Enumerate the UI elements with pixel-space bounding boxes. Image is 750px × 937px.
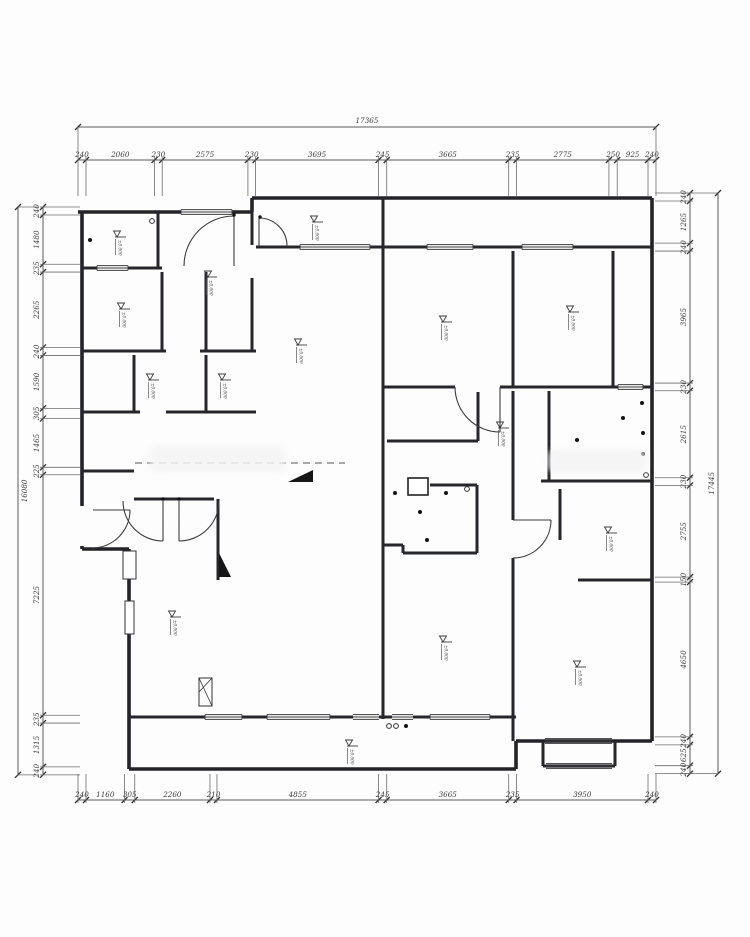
shaft-triangle-symbol	[219, 553, 231, 577]
dimension-label: 240	[679, 190, 688, 205]
dimension-label: 4855	[288, 790, 308, 799]
doors-layer	[92, 213, 551, 558]
elevation-marker-triangle	[169, 611, 176, 617]
dimension-label: 240	[644, 790, 659, 799]
elevation-marker-triangle	[118, 303, 125, 309]
elevation-marker-triangle	[219, 374, 226, 380]
outer-walls-path	[78, 198, 652, 769]
section-wedge-symbol	[288, 470, 313, 482]
light-dot	[621, 416, 625, 420]
elevation-marker-triangle	[574, 661, 581, 667]
dimension-label: 2575	[195, 150, 215, 159]
dimension-label: 240	[679, 762, 688, 777]
elevation-marker: ±0.000	[440, 316, 453, 341]
dimension-label: 240	[32, 204, 41, 219]
dimension-label: 150	[679, 572, 688, 586]
dimension-label: 240	[32, 344, 41, 359]
elevation-marker-triangle	[567, 306, 574, 312]
dimension-label: 230	[244, 150, 259, 159]
dimension-label: 230	[151, 150, 166, 159]
dimension-label: 3695	[308, 150, 327, 159]
light-dot	[425, 538, 429, 542]
dimension-label: 1160	[96, 790, 115, 799]
elevation-marker-triangle	[440, 316, 447, 322]
dimension-label: 245	[375, 790, 390, 799]
elevation-marker-triangle	[147, 374, 154, 380]
column-symbol	[408, 478, 428, 495]
elevation-marker: ±0.000	[114, 231, 127, 256]
elevation-marker-label: ±0.000	[173, 620, 178, 636]
dimension-label: 230	[679, 474, 688, 489]
elevation-marker-label: ±0.000	[578, 670, 583, 686]
elevation-marker: ±0.000	[295, 339, 308, 364]
dimension-label: 305	[32, 406, 41, 420]
elevation-marker: ±0.000	[497, 422, 510, 447]
dimension-label: 925	[626, 150, 640, 159]
elevation-marker: ±0.000	[147, 374, 160, 399]
elevation-marker-triangle	[311, 216, 318, 222]
dimension-label: 1480	[32, 230, 41, 249]
light-dot	[404, 724, 408, 728]
elevation-marker-label: ±0.000	[151, 383, 156, 399]
elevation-marker: ±0.000	[605, 527, 618, 552]
overall-dimension-label: 16080	[20, 479, 29, 502]
dimension-label: 240	[644, 150, 659, 159]
elevation-marker: ±0.000	[440, 636, 453, 661]
elevation-marker-label: ±0.000	[609, 536, 614, 552]
door-hinge-dot	[232, 213, 235, 216]
elevation-marker-triangle	[605, 527, 612, 533]
dimension-label: 2260	[162, 790, 182, 799]
light-dots-layer	[88, 219, 648, 729]
elevation-marker-label: ±0.000	[209, 280, 214, 296]
light-dot	[575, 438, 579, 442]
dimension-label: 235	[505, 150, 520, 159]
dimension-label: 1465	[32, 433, 41, 452]
dimension-label: 240	[74, 150, 89, 159]
dimension-label: 240	[679, 240, 688, 255]
overall-dimension-label: 17445	[707, 471, 716, 494]
elevation-marker: ±0.000	[574, 661, 587, 686]
dimension-label: 3665	[439, 150, 458, 159]
dimension-label: 2060	[110, 150, 130, 159]
door-hinge-dot	[258, 215, 261, 218]
dimension-label: 225	[32, 464, 41, 479]
floor-plan-svg: 2402060230257523036952453665235277525092…	[0, 0, 750, 937]
dimension-label: 625	[679, 748, 688, 762]
dimension-label: 2755	[679, 522, 688, 542]
elevation-marker-triangle	[440, 636, 447, 642]
elevation-marker: ±0.000	[346, 740, 359, 765]
light-dot	[393, 491, 397, 495]
elevation-marker-label: ±0.000	[444, 645, 449, 661]
dimension-label: 240	[74, 790, 89, 799]
meter-box-hatch	[199, 678, 212, 706]
dimension-label: 3950	[573, 790, 592, 799]
dimension-label: 1315	[32, 735, 41, 754]
floor-plan-canvas: 2402060230257523036952453665235277525092…	[0, 0, 750, 937]
elevation-markers-layer: ±0.000±0.000±0.000±0.000±0.000±0.000±0.0…	[114, 216, 618, 765]
dimension-label: 7225	[32, 585, 41, 604]
elevation-marker: ±0.000	[118, 303, 131, 328]
dimension-label: 235	[32, 712, 41, 727]
elevation-marker: ±0.000	[567, 306, 580, 331]
dimension-label: 2775	[553, 150, 573, 159]
elevation-marker: ±0.000	[205, 271, 218, 296]
elevation-marker-label: ±0.000	[223, 383, 228, 399]
dimension-label: 1590	[32, 372, 41, 391]
overall-dimension-label: 17365	[356, 116, 379, 125]
small-circle	[387, 724, 392, 729]
elevation-marker: ±0.000	[311, 216, 324, 241]
light-dot	[88, 238, 92, 242]
interior-walls-path	[82, 198, 652, 766]
dimensions-layer: 2402060230257523036952453665235277525092…	[15, 116, 721, 803]
small-circle	[394, 724, 399, 729]
door-hinge-dot	[161, 497, 164, 500]
light-dot	[444, 491, 448, 495]
elevation-marker-label: ±0.000	[299, 348, 304, 364]
dimension-label: 240	[679, 734, 688, 749]
riser-pipe-symbol	[125, 601, 134, 634]
door-hinge-dot	[177, 497, 180, 500]
elevation-marker-label: ±0.000	[571, 315, 576, 331]
walls-layer	[78, 198, 652, 769]
dimension-label: 3965	[679, 307, 688, 326]
dimension-label: 250	[605, 150, 620, 159]
elevation-marker-label: ±0.000	[118, 240, 123, 256]
dimension-label: 4650	[679, 650, 688, 670]
dimension-label: 3665	[439, 790, 458, 799]
light-dot	[641, 431, 645, 435]
dimension-label: 2615	[679, 425, 688, 445]
light-dot	[640, 401, 644, 405]
elevation-marker: ±0.000	[219, 374, 232, 399]
small-circle	[465, 487, 470, 492]
elevation-marker-triangle	[295, 339, 302, 345]
dimension-label: 230	[679, 380, 688, 395]
riser-panel-symbol	[123, 551, 136, 579]
elevation-marker-label: ±0.000	[350, 749, 355, 765]
small-circle	[644, 473, 649, 478]
elevation-marker-label: ±0.000	[444, 325, 449, 341]
light-dot	[641, 452, 645, 456]
elevation-marker-label: ±0.000	[501, 431, 506, 447]
dimension-label: 245	[375, 150, 390, 159]
elevation-marker-label: ±0.000	[315, 225, 320, 241]
dimension-label: 2265	[32, 300, 41, 320]
dimension-label: 1265	[679, 212, 688, 231]
dimension-label: 240	[32, 764, 41, 779]
elevation-marker-label: ±0.000	[122, 312, 127, 328]
dimension-label: 235	[505, 790, 520, 799]
elevation-marker-triangle	[346, 740, 353, 746]
elevation-marker-triangle	[114, 231, 121, 237]
light-dot	[418, 510, 422, 514]
elevation-marker: ±0.000	[169, 611, 182, 636]
small-circle	[150, 219, 155, 224]
dimension-label: 235	[32, 261, 41, 276]
